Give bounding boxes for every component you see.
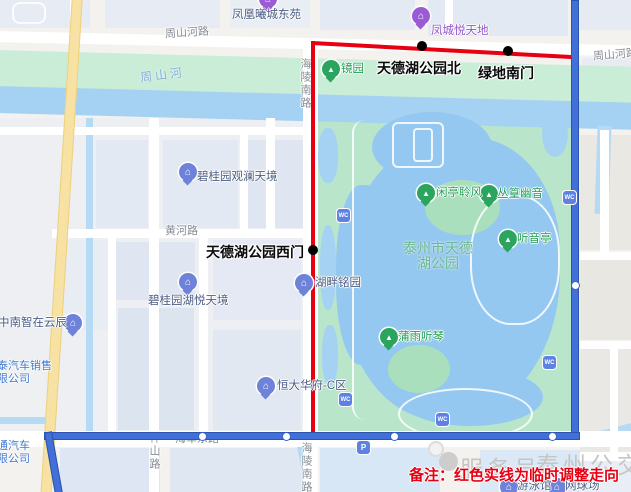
route-note: 备注：红色实线为临时调整走向 [409, 464, 619, 485]
park-spot-label[interactable]: 丛篁幽音 [497, 188, 543, 201]
toilet-icon[interactable]: WC [563, 191, 576, 204]
road-line [610, 345, 618, 460]
road-label: 黄河路 [165, 225, 198, 237]
bus-stop-dot[interactable] [390, 432, 399, 441]
pond-shape [318, 128, 338, 183]
bus-stop-dot[interactable] [198, 432, 207, 441]
poi-label[interactable]: 碧桂园观澜天境 [197, 171, 278, 184]
poi-label[interactable]: 碧桂园湖悦天境 [148, 295, 229, 308]
bus-stop-dot[interactable] [282, 432, 291, 441]
map-block [163, 140, 238, 228]
regular-route-vertical [571, 0, 579, 440]
park-spot-pin[interactable]: ▲ [322, 60, 340, 78]
poi-pin[interactable]: ⌂ [179, 273, 197, 291]
park-path [413, 128, 433, 162]
canal-shape [86, 118, 93, 434]
temporary-stop-dot[interactable] [417, 41, 427, 51]
toilet-icon[interactable]: WC [436, 413, 449, 426]
park-area-label-line1: 泰州市天德 [383, 241, 493, 256]
road-label: 海陵南路 [300, 442, 312, 492]
stop-label-tiandehu-north: 天德湖公园北 [377, 58, 461, 78]
poi-pin[interactable]: ⌂ [295, 274, 313, 292]
park-spot-label[interactable]: 镜园 [341, 63, 364, 76]
bus-stop-dot[interactable] [571, 281, 580, 290]
map-block [580, 258, 631, 340]
island-shape [388, 345, 450, 393]
bus-stop-dot[interactable] [548, 432, 557, 441]
toilet-icon[interactable]: WC [543, 356, 556, 369]
poi-label-partial[interactable]: 限公司 [0, 373, 30, 386]
park-area-label: 泰州市天德 湖公园 [383, 241, 493, 271]
poi-label[interactable]: 中南智在云辰 [0, 317, 67, 330]
park-spot-pin[interactable]: ▲ [417, 184, 435, 202]
road-label: 海陵南路 [299, 58, 311, 110]
park-spot-pin[interactable]: ▲ [480, 185, 498, 203]
temporary-stop-dot[interactable] [503, 46, 513, 56]
poi-label[interactable]: 凤凰曦城东苑 [232, 9, 301, 22]
road-line [580, 252, 631, 260]
road-line [108, 232, 116, 438]
park-spot-label[interactable]: 蒲雨听琴 [398, 331, 444, 344]
pond-shape [542, 112, 568, 157]
park-spot-label[interactable]: 听音亭 [517, 233, 552, 246]
park-spot-pin[interactable]: ▲ [499, 230, 517, 248]
map-block [580, 0, 631, 30]
map-canvas[interactable]: 周山河路 周山河路 黄河路 海军东路 神山路 海陵南路 海陵南路 周山河 ▲ 镜… [0, 0, 631, 492]
toilet-icon[interactable]: WC [339, 393, 352, 406]
stop-label-lvdi-south-gate: 绿地南门 [478, 63, 534, 83]
park-area-label-line2: 湖公园 [383, 256, 493, 271]
road-line [580, 341, 631, 349]
poi-label[interactable]: 凤城悦天地 [431, 25, 489, 38]
temporary-route-vertical [311, 41, 315, 436]
canal-shape [0, 417, 48, 424]
stop-label-tiandehu-west-gate: 天德湖公园西门 [206, 242, 304, 262]
toilet-icon[interactable]: WC [337, 209, 350, 222]
map-block [96, 140, 148, 228]
map-block [60, 448, 160, 492]
road-loop [12, 2, 46, 24]
poi-label-partial[interactable]: 通汽车 [0, 440, 30, 453]
map-block [246, 140, 306, 228]
map-block [170, 448, 305, 492]
poi-label[interactable]: 湖畔铭园 [315, 277, 361, 290]
regular-route-horizontal [44, 432, 580, 440]
poi-pin[interactable]: ⌂ [412, 7, 430, 25]
parking-icon[interactable]: P [357, 441, 370, 454]
map-block [320, 0, 415, 30]
park-spot-label[interactable]: 闲亭聆风 [436, 187, 482, 200]
map-block [105, 0, 220, 28]
park-spot-pin[interactable]: ▲ [380, 328, 398, 346]
park-path [352, 120, 378, 420]
pond-shape [322, 325, 338, 385]
poi-pin[interactable]: ⌂ [257, 377, 275, 395]
poi-label-partial[interactable]: 限公司 [0, 453, 30, 466]
poi-pin[interactable]: ⌂ [179, 163, 197, 181]
poi-label-partial[interactable]: 泰汽车销售 [0, 360, 52, 373]
poi-label[interactable]: 恒大华府-C区 [277, 380, 347, 393]
road-line [600, 130, 609, 256]
pond-shape [320, 225, 336, 310]
road-line [199, 232, 208, 438]
temporary-stop-dot[interactable] [308, 245, 318, 255]
